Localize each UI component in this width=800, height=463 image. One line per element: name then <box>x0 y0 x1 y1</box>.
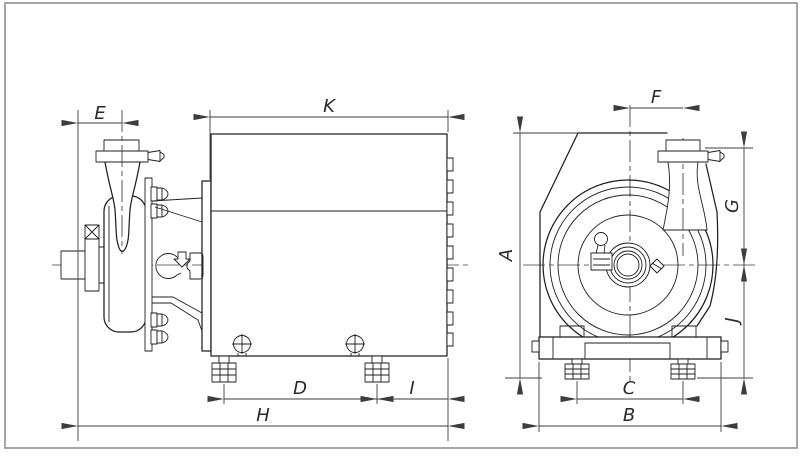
technical-drawing: E K D I H F A <box>0 0 800 463</box>
front-view <box>523 105 757 383</box>
dim-label-H: H <box>256 405 270 426</box>
shaft-coupling-detail <box>156 252 203 279</box>
clamp-hinge-icon <box>650 259 664 273</box>
casing-backplate <box>145 178 168 351</box>
base-side-bolt <box>721 341 728 352</box>
suction-clamp-wingnut-icon <box>85 225 99 239</box>
discharge-ferrule-front <box>658 140 724 162</box>
dim-label-C: C <box>623 378 636 399</box>
dimension-D: D <box>224 378 377 399</box>
backplate-bolt <box>151 330 168 344</box>
dimension-G: G <box>722 148 744 265</box>
dimension-E: E <box>78 103 122 124</box>
backplate-bolt <box>151 187 168 201</box>
dimension-F: F <box>630 87 683 108</box>
suction-port-front <box>591 233 664 288</box>
backplate-bolt <box>151 313 168 327</box>
base-foot <box>671 359 695 379</box>
suction-port <box>61 225 108 291</box>
clamp-pin-icon <box>708 151 720 162</box>
backplate-bolt <box>151 204 168 218</box>
discharge-ferrule <box>96 140 164 162</box>
dimension-H: H <box>78 405 448 426</box>
dim-label-A: A <box>496 249 517 262</box>
motor-foot <box>212 356 236 382</box>
dim-label-B: B <box>623 405 635 426</box>
dimension-A: A <box>496 133 520 378</box>
motor-body <box>211 134 453 382</box>
motor-cooling-fins <box>447 158 453 346</box>
dim-label-G: G <box>722 199 743 213</box>
dim-label-D: D <box>293 378 307 399</box>
dim-label-F: F <box>651 87 662 108</box>
clamp-pin-icon <box>148 151 160 162</box>
dim-label-K: K <box>323 96 336 117</box>
dimension-C: C <box>577 378 683 399</box>
dim-label-E: E <box>94 103 106 124</box>
dimension-B: B <box>539 405 721 426</box>
dimension-K: K <box>210 96 448 117</box>
clamp-wingnut-icon <box>591 233 612 271</box>
dim-label-I: I <box>409 378 414 399</box>
side-view <box>52 134 468 382</box>
dim-label-J: J <box>722 317 743 325</box>
base-side-bolt <box>532 341 539 352</box>
dimension-J: J <box>722 265 744 378</box>
motor-foot <box>365 356 389 382</box>
base-foot <box>565 359 589 379</box>
